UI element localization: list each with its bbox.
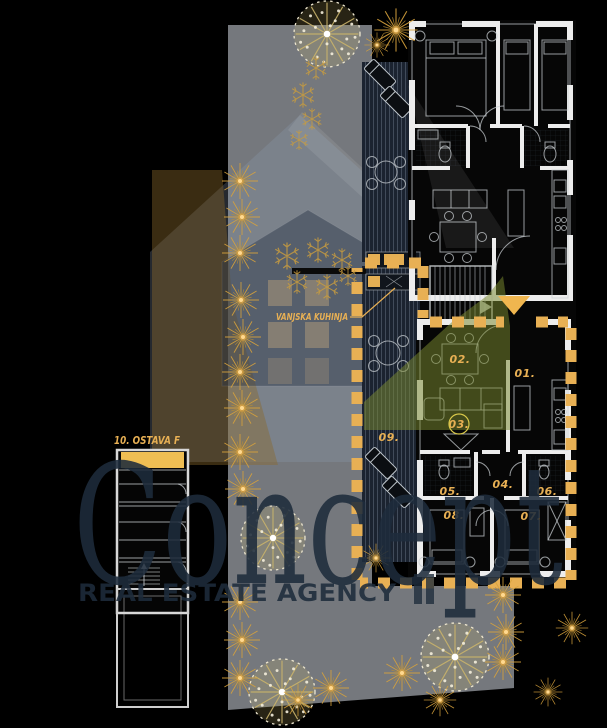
site-plan-svg: 01. 02. 03. 04. 05. 06. 07. 08. 09. VANJ… <box>0 0 607 728</box>
watermark-text: Concept REAL ESTATE AGENCY <box>73 430 563 623</box>
outdoor-kitchen-label: VANJSKA KUHINJA <box>276 312 348 323</box>
floor-plan-image: 01. 02. 03. 04. 05. 06. 07. 08. 09. VANJ… <box>0 0 607 728</box>
watermark-tagline: REAL ESTATE AGENCY <box>78 579 397 607</box>
watermark-logo-bar <box>426 574 434 604</box>
upper-terrace-deck <box>362 59 412 262</box>
watermark-logo-bar <box>414 574 422 604</box>
room-label-01: 01. <box>515 367 536 380</box>
room-label-02: 02. <box>450 353 471 366</box>
